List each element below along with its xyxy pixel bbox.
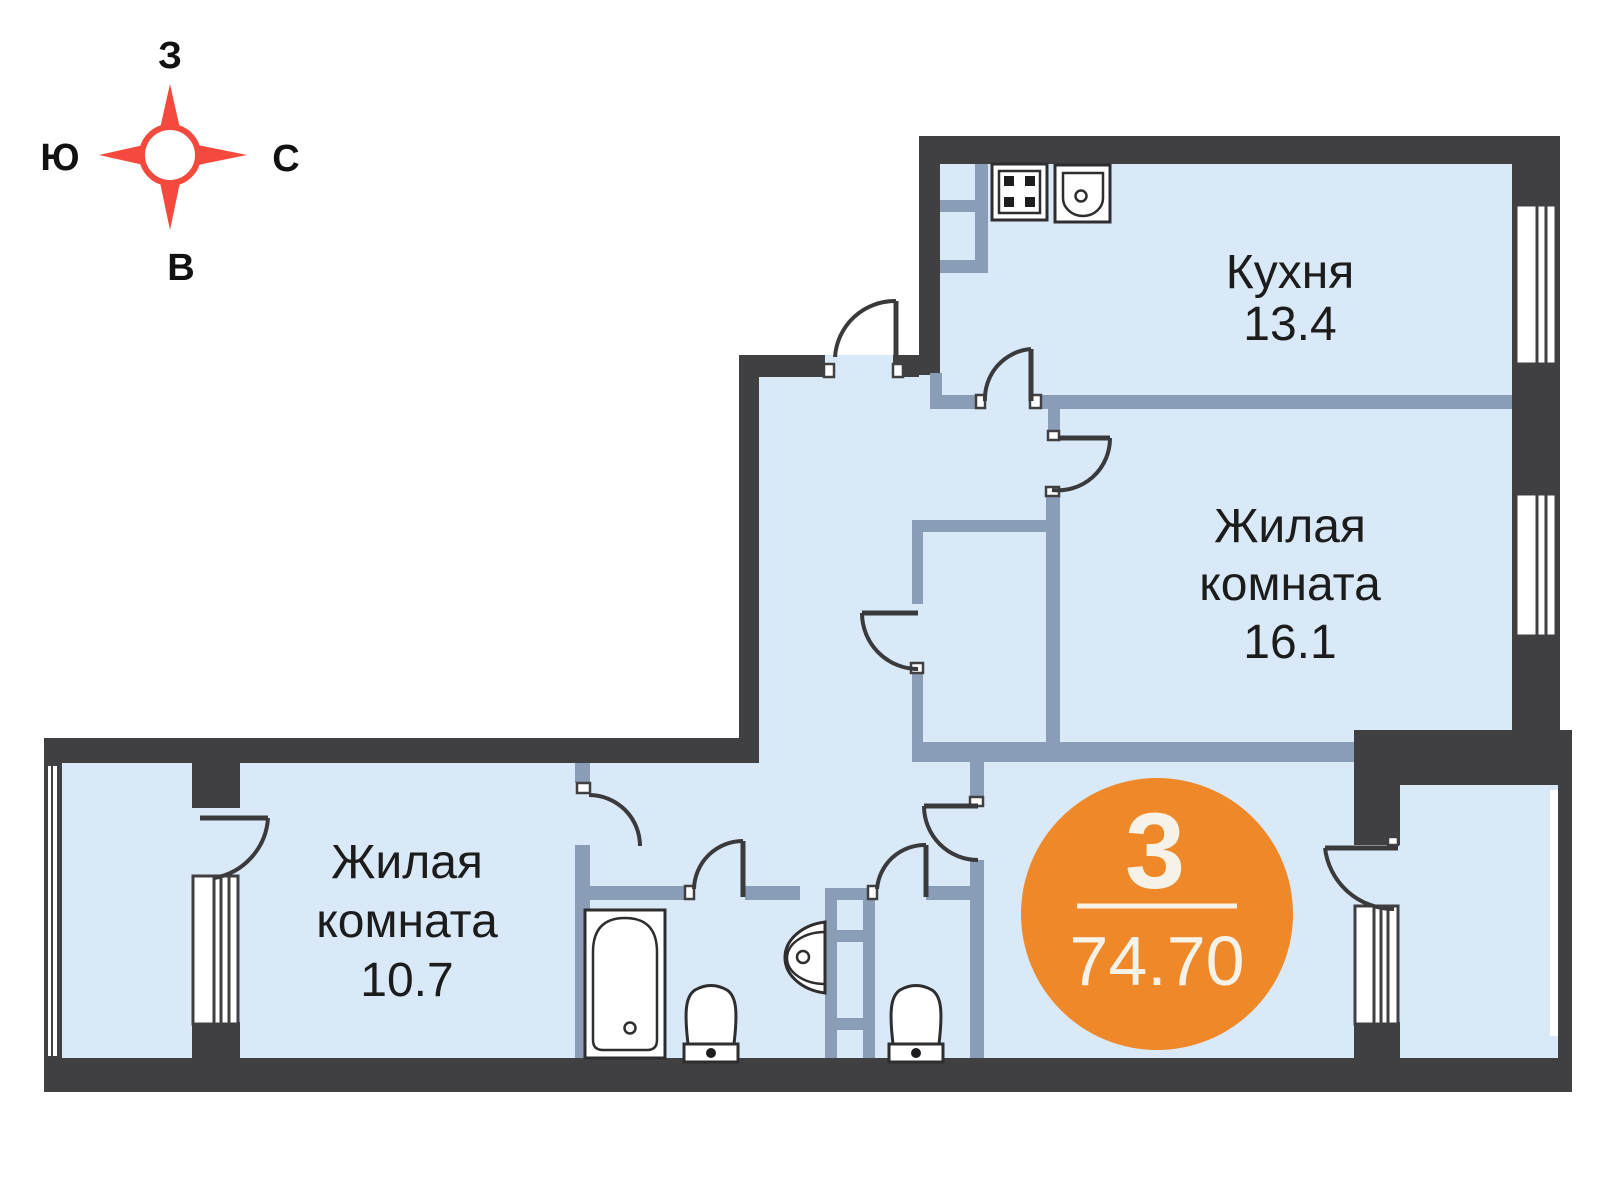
kitchen-sink-icon — [1055, 165, 1110, 222]
floor-plan: Кухня 13.4 Жилая комната 16.1 Жилая комн… — [0, 0, 1600, 1200]
compass-north-label: С — [272, 138, 299, 180]
toilet-bath-icon — [684, 986, 738, 1063]
apartment-badge: 3 74.70 — [1021, 778, 1293, 1050]
compass-east-label: В — [167, 247, 194, 289]
window-kitchen — [1516, 205, 1556, 364]
toilet-wc-icon — [889, 986, 943, 1063]
living-large-name-1: Жилая — [1214, 500, 1366, 553]
window-balcony-left — [48, 766, 57, 1056]
compass-hub — [142, 127, 198, 183]
bathtub-icon — [585, 910, 665, 1058]
balcony-door-window-unit — [193, 876, 238, 1024]
window-living-large — [1516, 494, 1556, 636]
floor-plan-page: Кухня 13.4 Жилая комната 16.1 Жилая комн… — [0, 0, 1600, 1200]
compass-west-label: З — [158, 35, 182, 77]
kitchen-name: Кухня — [1226, 246, 1354, 299]
stove-icon — [992, 164, 1047, 220]
lower-wing-floor — [44, 738, 1572, 1092]
loggia-door-window-unit — [1355, 906, 1398, 1024]
kitchen-area: 13.4 — [1243, 298, 1336, 351]
hall-floor — [739, 355, 1060, 763]
badge-rooms-count: 3 — [1125, 790, 1185, 911]
compass-south-label: Ю — [40, 137, 79, 179]
living-small-name-2: комната — [316, 895, 498, 948]
badge-total-area: 74.70 — [1069, 922, 1244, 1000]
living-small-area: 10.7 — [360, 954, 453, 1007]
entrance-door — [835, 301, 896, 357]
living-small-name-1: Жилая — [331, 836, 483, 889]
window-loggia-right — [1550, 790, 1558, 1036]
compass-rose: З Ю С В — [40, 35, 299, 289]
living-large-area: 16.1 — [1243, 616, 1336, 669]
room-label-kitchen: Кухня 13.4 — [1226, 246, 1354, 351]
living-large-name-2: комната — [1199, 558, 1381, 611]
